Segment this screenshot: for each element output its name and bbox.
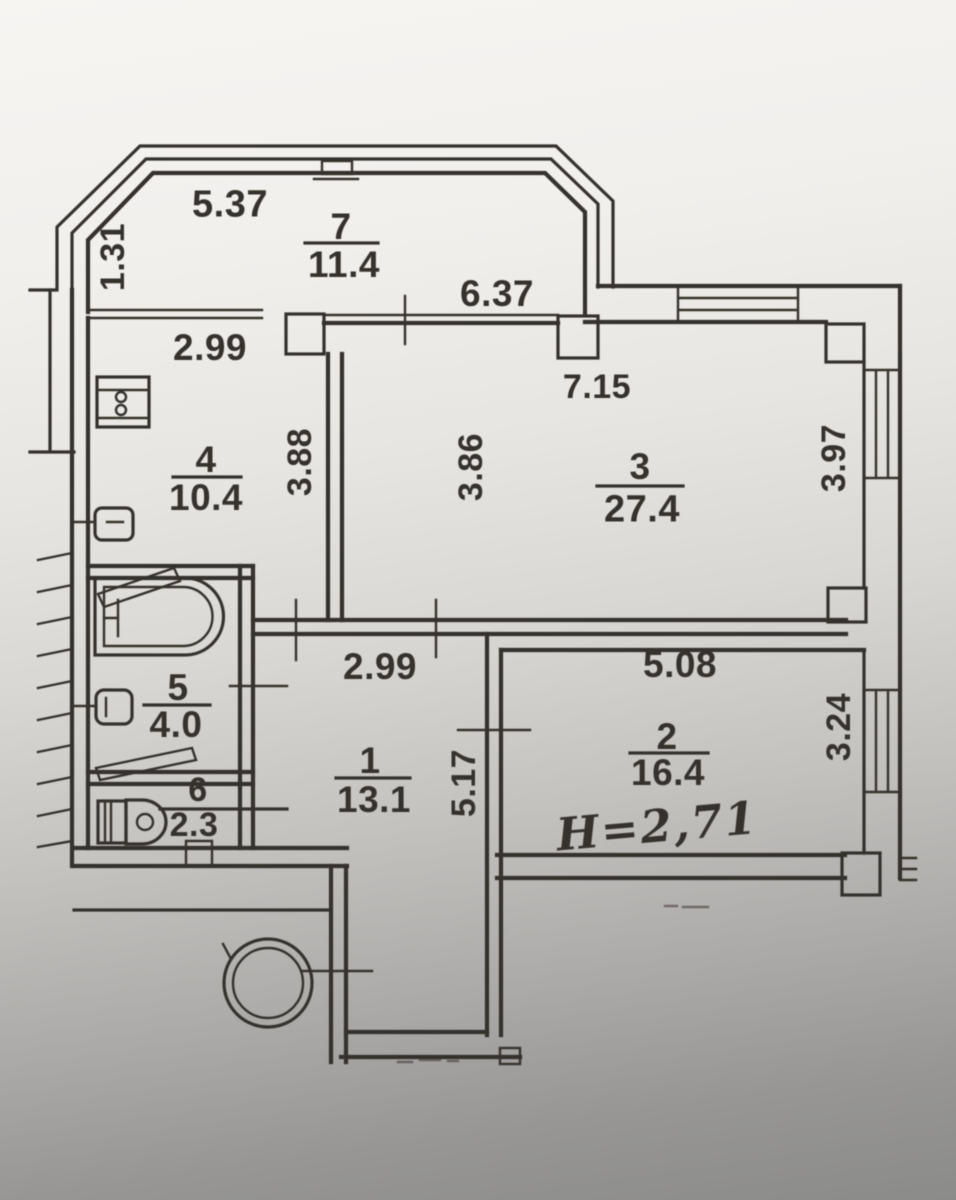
ceiling-height-note: H=2,71 xyxy=(552,791,760,862)
pillar xyxy=(842,853,880,895)
kitchen-room3-wall xyxy=(328,354,342,620)
hallway-room2-wall xyxy=(487,634,501,1035)
dim-balcony-width: 5.37 xyxy=(192,183,268,225)
pillar xyxy=(828,588,866,622)
cut-off-marks xyxy=(398,1060,458,1062)
dim-hallway-width: 2.99 xyxy=(343,646,417,687)
room-6-number: 6 xyxy=(188,771,207,809)
room2-bottom-wall xyxy=(497,855,845,878)
dim-kitchen-depth: 3.88 xyxy=(281,428,319,496)
room-2-area: 16.4 xyxy=(631,752,705,793)
dim-room3-window: 3.97 xyxy=(815,424,853,492)
dim-room3-width: 7.15 xyxy=(563,368,631,406)
room-4-area: 10.4 xyxy=(169,477,243,518)
middle-wall xyxy=(253,620,846,634)
room-6-area: 2.3 xyxy=(170,806,219,844)
scan-noise xyxy=(665,906,708,907)
room-7-number: 7 xyxy=(330,206,351,247)
room-5-number: 5 xyxy=(167,667,188,708)
room-3-area: 27.4 xyxy=(604,488,680,530)
column-inner xyxy=(233,948,303,1018)
dim-room2-width: 5.08 xyxy=(643,644,717,685)
dim-balcony-depth: 1.31 xyxy=(94,223,132,291)
basin-icon xyxy=(74,690,132,724)
pillar xyxy=(826,324,864,362)
west-wall xyxy=(30,290,88,866)
room-5-area: 4.0 xyxy=(150,704,203,745)
entry-vestibule xyxy=(223,866,708,1064)
room-3-number: 3 xyxy=(629,446,650,487)
room-2-number: 2 xyxy=(656,716,677,757)
neighbor-wall-hatch xyxy=(900,858,916,880)
window-room3 xyxy=(864,370,900,478)
room-1-number: 1 xyxy=(359,740,380,781)
dim-kitchen-window: 2.99 xyxy=(173,327,247,368)
floor-plan-scan: 5.37 1.31 7 11.4 2.99 6.37 7.15 3.88 3.8… xyxy=(0,0,956,1200)
dim-hallway-depth: 5.17 xyxy=(445,749,483,817)
dim-room2-window: 3.24 xyxy=(820,693,858,761)
shelf xyxy=(96,748,196,780)
window-top xyxy=(678,286,798,322)
room-7-area: 11.4 xyxy=(308,244,380,285)
stove-icon xyxy=(97,377,149,427)
window-room2 xyxy=(864,690,900,792)
dim-room3-depth: 3.86 xyxy=(452,433,490,501)
exterior-hatch xyxy=(38,553,72,847)
east-wall xyxy=(828,286,916,895)
room-4-number: 4 xyxy=(195,439,216,480)
room-1-area: 13.1 xyxy=(337,779,411,820)
floor-plan-drawing: 5.37 1.31 7 11.4 2.99 6.37 7.15 3.88 3.8… xyxy=(0,0,956,1200)
south-walls xyxy=(74,848,347,910)
column xyxy=(224,939,312,1027)
pillar xyxy=(286,314,324,354)
floor-drain-mark xyxy=(186,841,212,864)
kitchen-window-sill xyxy=(88,310,262,318)
sink-icon xyxy=(75,508,133,540)
dim-balcony-wall: 6.37 xyxy=(460,273,534,314)
